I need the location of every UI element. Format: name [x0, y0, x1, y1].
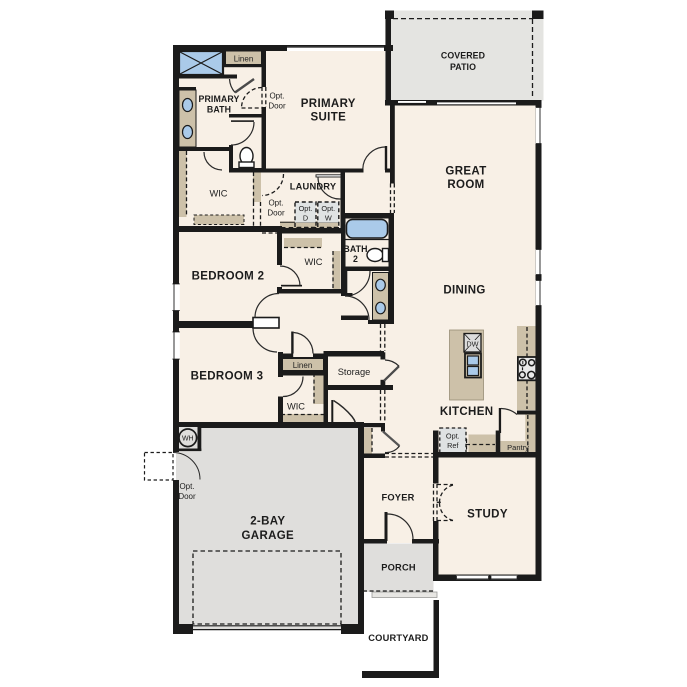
svg-text:GARAGE: GARAGE — [242, 530, 295, 542]
svg-text:COVERED: COVERED — [441, 50, 485, 60]
svg-text:Door: Door — [178, 492, 196, 501]
svg-text:Opt.: Opt. — [179, 482, 194, 491]
svg-text:DINING: DINING — [443, 285, 485, 297]
svg-text:Opt.: Opt. — [321, 204, 335, 213]
svg-text:Door: Door — [267, 209, 285, 218]
svg-text:STUDY: STUDY — [467, 509, 508, 521]
svg-text:Door: Door — [268, 102, 286, 111]
svg-text:2-BAY: 2-BAY — [250, 516, 285, 528]
svg-text:Opt.: Opt. — [269, 92, 284, 101]
svg-text:COURTYARD: COURTYARD — [368, 633, 428, 643]
svg-text:FOYER: FOYER — [381, 492, 414, 502]
svg-text:D: D — [303, 213, 308, 222]
svg-text:Pantry: Pantry — [507, 443, 529, 452]
svg-text:Linen: Linen — [234, 55, 254, 64]
svg-text:BATH: BATH — [207, 104, 231, 114]
svg-text:BATH: BATH — [343, 244, 367, 254]
svg-text:WH: WH — [182, 436, 194, 443]
svg-text:WIC: WIC — [209, 189, 227, 199]
svg-text:Ref: Ref — [447, 441, 459, 450]
svg-text:PORCH: PORCH — [381, 563, 416, 573]
svg-text:PRIMARY: PRIMARY — [301, 98, 356, 110]
svg-text:WIC: WIC — [287, 401, 305, 411]
svg-text:GREAT: GREAT — [445, 165, 486, 177]
svg-text:Linen: Linen — [293, 361, 313, 370]
svg-text:SUITE: SUITE — [310, 111, 346, 123]
svg-text:Storage: Storage — [338, 367, 371, 377]
svg-text:Opt.: Opt. — [268, 199, 283, 208]
svg-text:KITCHEN: KITCHEN — [440, 406, 494, 418]
svg-text:2: 2 — [353, 254, 358, 264]
svg-text:Opt.: Opt. — [299, 204, 313, 213]
svg-text:DW: DW — [466, 340, 478, 349]
svg-text:PATIO: PATIO — [450, 62, 476, 72]
svg-text:ROOM: ROOM — [447, 179, 484, 191]
svg-text:BEDROOM 3: BEDROOM 3 — [191, 371, 264, 383]
svg-text:PRIMARY: PRIMARY — [199, 94, 240, 104]
svg-text:WIC: WIC — [304, 257, 322, 267]
svg-text:LAUNDRY: LAUNDRY — [290, 181, 337, 191]
svg-text:BEDROOM 2: BEDROOM 2 — [192, 271, 265, 283]
svg-text:Opt.: Opt. — [446, 432, 460, 441]
svg-text:W: W — [325, 213, 332, 222]
